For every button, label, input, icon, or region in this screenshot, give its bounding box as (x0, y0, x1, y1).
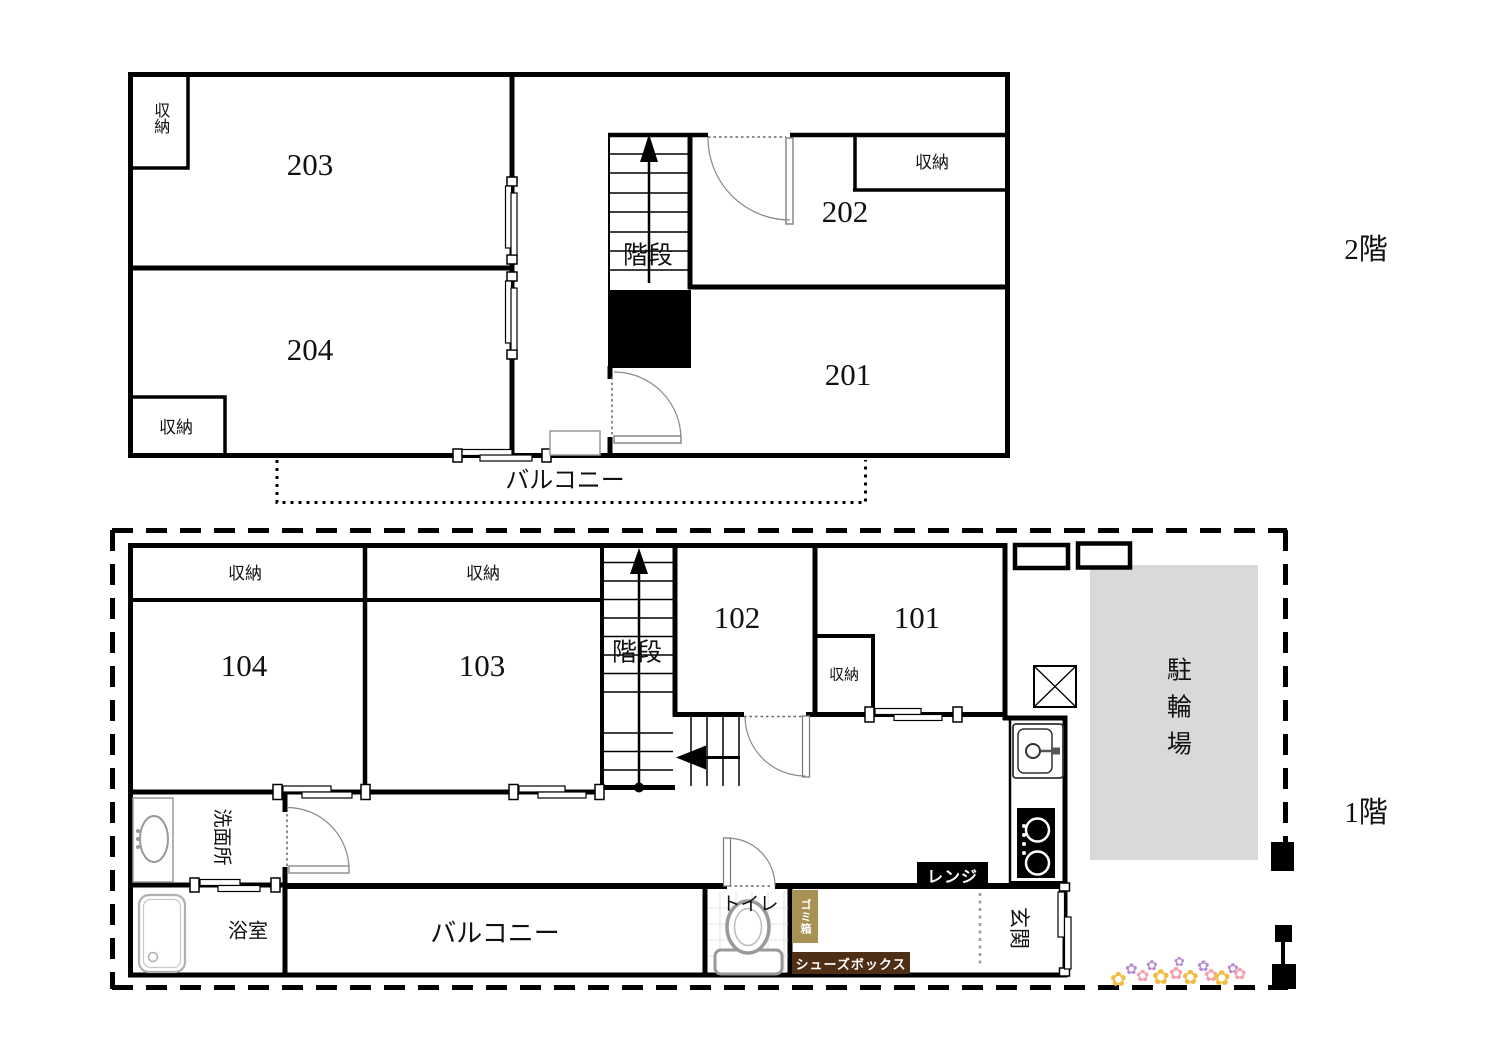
shoe-box-label: シューズボックス (796, 954, 907, 973)
bathtub-icon (139, 895, 185, 972)
room-102-label: 102 (714, 600, 761, 636)
trash-box: ゴミ箱 (792, 890, 818, 943)
room-104-label: 104 (221, 648, 268, 684)
balcony-2f-label: バルコニー (505, 467, 625, 495)
door-201-icon (612, 372, 681, 443)
first-floor-drawing (108, 526, 1298, 996)
washroom-label: 洗面所 (210, 808, 232, 865)
flower-icon (1233, 967, 1246, 983)
door-hall-icon (287, 808, 349, 874)
washbasin-icon (133, 798, 173, 882)
trash-box-label: ゴミ箱 (797, 899, 813, 935)
black-void-box (608, 290, 691, 368)
room-202-label: 202 (822, 194, 869, 230)
bathroom-label: 浴室 (228, 921, 268, 944)
step-2f-icon (550, 431, 600, 455)
storage-104-label: 収納 (228, 564, 262, 584)
entrance-door-icon (1058, 883, 1071, 976)
second-floor-drawing (128, 72, 1010, 505)
storage-103-label: 収納 (466, 564, 500, 584)
balcony-1f-label: バルコニー (430, 919, 559, 949)
stove-icon (1017, 808, 1055, 878)
room-101-label: 101 (894, 600, 941, 636)
floorplan-canvas: 収納 203 204 収納 階段 202 収納 201 バルコニー (0, 0, 1506, 1064)
storage-204-label: 収納 (159, 418, 193, 438)
door-202-icon (708, 137, 793, 224)
door-toilet-icon (724, 838, 776, 886)
wall-unit-icons (1015, 544, 1130, 569)
range-box: レンジ (917, 862, 988, 888)
room-203-label: 203 (287, 147, 334, 183)
room-103-label: 103 (459, 648, 506, 684)
window-203-icon (506, 177, 518, 264)
toilet-label: トイレ (721, 894, 778, 916)
gate-post-icons (1271, 842, 1296, 989)
window-204-icon (506, 272, 518, 359)
storage-202-label: 収納 (915, 153, 949, 173)
storage-101-label: 収納 (829, 666, 859, 683)
stairs-2f-label: 階段 (623, 242, 673, 271)
room-204-label: 204 (287, 332, 334, 368)
range-label: レンジ (927, 863, 978, 887)
entrance-label: 玄関 (1006, 907, 1030, 949)
walls-2f (130, 74, 1008, 456)
first-floor-label: 1階 (1344, 789, 1388, 831)
stairs-1f-label: 階段 (612, 639, 662, 668)
kitchen-sink-icon (1013, 724, 1063, 778)
stairs-1f-icon (602, 548, 740, 793)
door-corridor-icon (744, 716, 810, 777)
second-floor-label: 2階 (1344, 226, 1388, 268)
flower-icon (1152, 967, 1170, 988)
flower-bed (1108, 954, 1258, 992)
shoe-box: シューズボックス (792, 952, 910, 974)
second-floor-plan: 収納 203 204 収納 階段 202 収納 201 バルコニー (128, 72, 1010, 505)
bicycle-parking-label: 駐輪場 (1163, 657, 1192, 768)
storage-203-label: 収納 (150, 102, 168, 134)
room-201-label: 201 (825, 357, 872, 393)
vent-icon (1034, 666, 1076, 707)
first-floor-plan: 収納 収納 104 103 階段 102 101 収納 洗面所 浴室 バルコニー… (108, 526, 1298, 996)
